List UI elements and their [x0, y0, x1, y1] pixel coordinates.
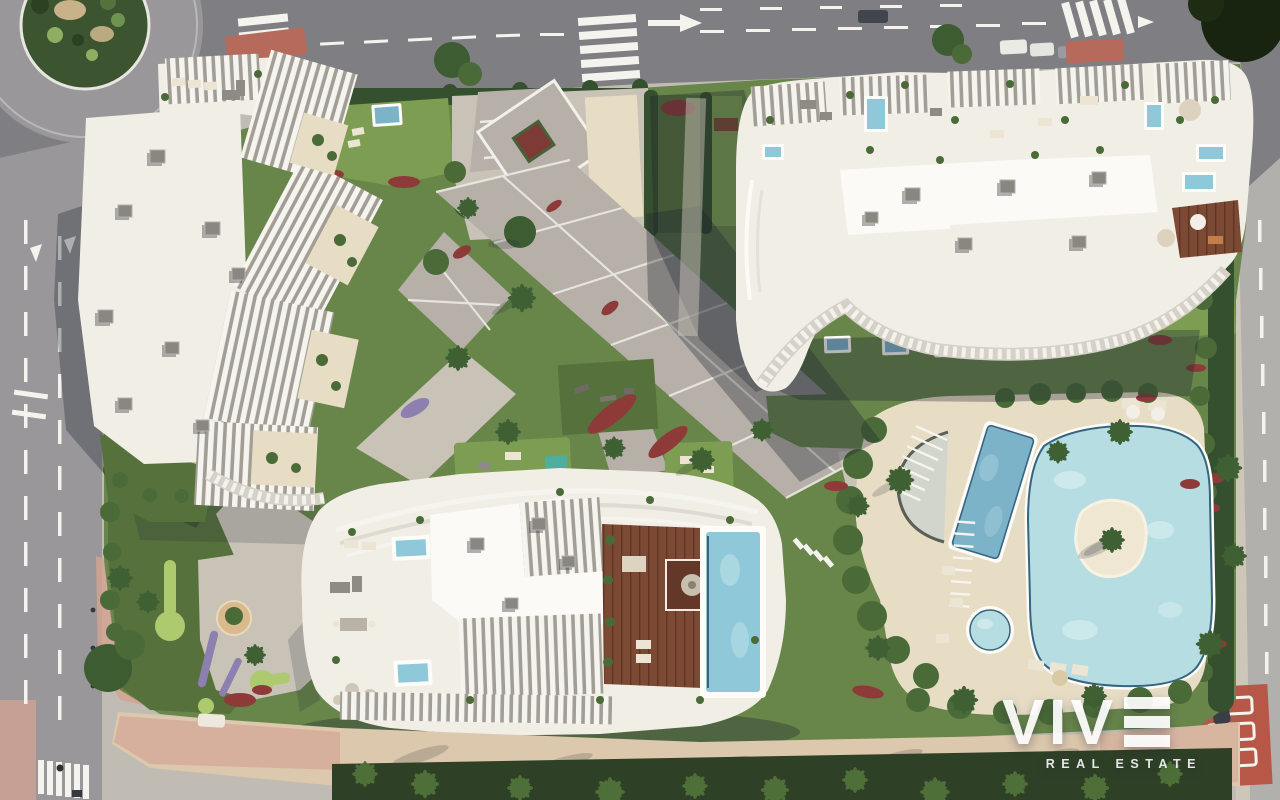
- lane-dashes-left-part: [24, 542, 28, 566]
- roof-units-north-part: [205, 222, 220, 235]
- building-south-part: [646, 496, 654, 504]
- roof-furniture-north-part: [161, 93, 169, 101]
- street-trees-part: [488, 239, 520, 249]
- building-south-part: [348, 528, 356, 536]
- watermark-tagline: REAL ESTATE: [1002, 757, 1202, 771]
- lane-dashes-left-part: [24, 634, 28, 658]
- lane-dashes-top-part: [884, 26, 908, 29]
- roof-units-north-part: [118, 205, 132, 217]
- street-trees-part: [458, 62, 482, 86]
- mini-golf-garden-part: [100, 502, 120, 522]
- roof-terraces-ne-part: [765, 147, 781, 157]
- street-trees-part: [952, 44, 972, 64]
- fin-band-south-2: [459, 614, 604, 699]
- street-trees-part: [423, 249, 449, 275]
- site-palms-part: [508, 284, 537, 313]
- lane-dashes-left-part: [58, 420, 62, 444]
- building-northeast-part: [1190, 214, 1206, 230]
- pool-loungers-part: [950, 598, 963, 607]
- building-north-part: [347, 257, 357, 267]
- terracotta-roof-right: [1065, 38, 1124, 63]
- rooftop-pool-south: [700, 526, 766, 698]
- building-north-part: [334, 234, 346, 246]
- bottom-palms-part: [352, 761, 378, 787]
- roundabout-part: [111, 13, 125, 27]
- roof-terraces-ne-part: [1199, 147, 1223, 159]
- lane-dashes-right-part: [1259, 268, 1263, 290]
- lane-dashes-left-part: [24, 266, 28, 290]
- building-south-part: [636, 640, 651, 649]
- lane-dashes-right-part: [1261, 364, 1265, 386]
- roof-terraces-ne-part: [1147, 105, 1161, 127]
- crosswalk-bottomleft-part: [47, 761, 53, 795]
- roof-terraces-ne-part: [1031, 151, 1039, 159]
- pergola-5: [1153, 60, 1231, 104]
- roundabout-part: [72, 34, 84, 46]
- roof-terraces-ne-part: [846, 91, 854, 99]
- watermark-stylized-e: [1124, 697, 1170, 754]
- pool-greens-part: [833, 525, 863, 555]
- rooftop-pool-south-part: [731, 622, 749, 658]
- roads-part: [57, 765, 64, 772]
- lane-dashes-left-part: [24, 496, 28, 520]
- mini-golf-garden-part: [103, 543, 121, 561]
- roof-terraces-ne-part: [866, 146, 874, 154]
- pool-trellis-part-part: [955, 521, 975, 522]
- site-palms-part: [136, 590, 159, 613]
- roof-furniture-north-part: [236, 80, 245, 96]
- terrace-west-south-part: [369, 621, 376, 628]
- site-palms-part: [950, 686, 979, 715]
- pool-loungers-part: [942, 566, 955, 575]
- pool-loungers-part: [1151, 407, 1165, 421]
- lane-dashes-top-part: [760, 7, 782, 10]
- roof-units-north-part: [98, 310, 113, 323]
- car-top-road: [858, 10, 888, 23]
- building-south-part: [605, 535, 615, 545]
- mini-golf-garden-part: [198, 698, 214, 714]
- van-white-2: [1030, 42, 1055, 56]
- lane-dashes-top-part: [700, 30, 724, 33]
- building-north-part: [143, 488, 157, 502]
- site-palms-part: [445, 345, 471, 371]
- roof-terraces-ne-part: [1157, 229, 1175, 247]
- building-north-part: [291, 463, 301, 473]
- wood-terrace-se: [1172, 200, 1242, 258]
- roundabout-part: [54, 0, 86, 20]
- roundabout-part: [86, 49, 98, 61]
- pool-trellis-part-part: [954, 533, 974, 534]
- garden-pool-top: [371, 103, 402, 127]
- building-south-part: [603, 657, 613, 667]
- building-south: [288, 468, 800, 756]
- roof-terraces-ne-part: [1061, 116, 1069, 124]
- lane-dashes-left-part: [58, 696, 62, 720]
- leisure-pool-part: [1158, 602, 1182, 618]
- roof-units-north-part: [118, 398, 132, 410]
- aerial-site-render: VIV REAL ESTATE: [0, 0, 1280, 800]
- building-south-part: [416, 516, 424, 524]
- roof-units-south-part: [562, 556, 575, 567]
- building-south-part: [751, 636, 759, 644]
- mini-golf-garden-part: [155, 611, 185, 641]
- lane-dashes-top-part: [820, 6, 842, 9]
- site-plot-part: [372, 88, 388, 104]
- roof-terraces-ne-part: [1096, 146, 1104, 154]
- pool-trellis-part-part: [953, 557, 973, 558]
- lane-dashes-left-part: [24, 588, 28, 612]
- roof-terraces-ne-part: [1038, 118, 1052, 126]
- site-palms-part: [1196, 630, 1225, 659]
- terrace-west-south-part: [362, 542, 376, 550]
- building-south-part: [466, 696, 474, 704]
- pergola-4: [1055, 64, 1145, 105]
- roof-terraces-ne-part: [936, 156, 944, 164]
- crosswalk-bottomleft-part: [83, 765, 89, 799]
- bottom-palms-part: [842, 767, 868, 793]
- site-plot-part: [444, 161, 466, 183]
- watermark-vive: VIV REAL ESTATE: [1002, 690, 1202, 771]
- lane-dashes-top-part: [1022, 22, 1046, 25]
- roof-terraces-ne-part: [1080, 96, 1098, 105]
- pergola-3: [947, 68, 1040, 107]
- lane-dashes-left-part: [24, 680, 28, 704]
- pool-loungers-part: [1126, 405, 1140, 419]
- roof-furniture-north-part: [172, 78, 186, 87]
- roof-terraces-ne-part: [951, 116, 959, 124]
- pool-trellis-part-part: [950, 593, 970, 594]
- roof-terraces-ne-part: [1211, 96, 1219, 104]
- mini-golf-garden-part: [100, 590, 120, 610]
- fin-band-south-3: [340, 692, 612, 725]
- leisure-pool-part: [1054, 471, 1086, 489]
- bottom-palms-part: [507, 775, 533, 800]
- building-north-part: [251, 430, 318, 487]
- site-plan-svg: [0, 0, 1280, 800]
- building-north-part: [266, 452, 278, 464]
- lane-dashes-left-part: [58, 650, 62, 674]
- building-south-part: [726, 516, 734, 524]
- building-south-part: [636, 654, 651, 663]
- mini-golf-garden-part: [164, 560, 176, 616]
- building-south-part: [603, 575, 613, 585]
- roof-furniture-north-part: [188, 80, 202, 89]
- site-palms-part: [1046, 440, 1069, 463]
- terrace-west-south-part: [398, 663, 429, 683]
- site-plot-part: [545, 455, 568, 469]
- leisure-pool: [1028, 426, 1212, 686]
- crosswalk-bottomleft-part: [65, 763, 71, 797]
- roads-part: [72, 790, 82, 797]
- pool-greens-part: [842, 566, 870, 594]
- van-white-1: [1000, 39, 1028, 54]
- flower-beds-red-part: [388, 176, 420, 188]
- site-palms-part: [865, 635, 891, 661]
- watermark-brand-row: VIV: [1002, 690, 1202, 754]
- lane-dashes-right-part: [1262, 412, 1266, 434]
- roundabout-part: [90, 26, 114, 42]
- building-north-part: [331, 381, 341, 391]
- lane-dashes-left-part: [58, 558, 62, 582]
- pool-trellis-part-part: [954, 545, 974, 546]
- terrace-west-south-part: [344, 540, 358, 548]
- lane-dashes-right-part: [1258, 220, 1262, 242]
- building-south-part: [596, 696, 604, 704]
- pink-corner: [0, 700, 36, 800]
- building-north-part: [316, 354, 328, 366]
- lane-dashes-left-part: [24, 220, 28, 244]
- terrace-west-south-part: [330, 582, 350, 593]
- lane-dashes-left-part: [24, 312, 28, 336]
- lane-dashes-top-part: [746, 29, 770, 32]
- pool-greens-part: [913, 663, 939, 689]
- terrace-west-south-part: [396, 539, 427, 557]
- site-palms-part: [495, 419, 521, 445]
- right-hedge-part: [1190, 386, 1210, 406]
- bottom-palms-part: [1002, 771, 1028, 797]
- kids-pool-part: [977, 619, 993, 629]
- pool-trellis-part-part: [951, 581, 971, 582]
- pool-greens-part: [1180, 479, 1200, 489]
- rooftop-pool-south-part: [720, 554, 740, 586]
- lane-dashes-right-part: [1264, 604, 1268, 626]
- lane-dashes-right-part: [1263, 460, 1267, 482]
- roof-terraces-ne-part: [820, 112, 832, 120]
- mini-golf-garden-part: [224, 693, 256, 707]
- roof-terraces-ne-part: [800, 100, 816, 109]
- roof-terraces-ne-part: [1176, 116, 1184, 124]
- site-palms-part: [602, 436, 625, 459]
- bottom-palms-part: [411, 770, 440, 799]
- kids-pool-part: [970, 610, 1010, 650]
- roof-furniture-north-part: [204, 82, 218, 91]
- building-south-part: [688, 581, 696, 589]
- site-palms-part: [846, 494, 869, 517]
- building-south-part: [696, 696, 704, 704]
- lane-dashes-right-part: [1263, 508, 1267, 530]
- lane-dashes-right-part: [1265, 652, 1269, 674]
- roof-units-south-part: [470, 538, 484, 550]
- leisure-pool-part: [1146, 521, 1174, 539]
- roof-units-north-part: [196, 420, 209, 431]
- roof-units-ne-part: [905, 188, 920, 201]
- site-palms-part: [750, 418, 773, 441]
- site-plot-part: [478, 462, 490, 470]
- building-north-part: [175, 489, 189, 503]
- roof-terraces-ne-part: [1006, 80, 1014, 88]
- mini-golf-garden-part: [225, 607, 243, 625]
- roof-terraces-ne-part: [1185, 175, 1213, 189]
- site-plot-part: [624, 388, 634, 394]
- roof-terraces-ne-part: [930, 108, 942, 116]
- site-palms-part: [689, 447, 715, 473]
- watermark-brand-text: VIV: [1002, 690, 1117, 754]
- roof-units-north-part: [232, 268, 245, 280]
- roof-furniture-north-part: [254, 70, 262, 78]
- terrace-west-south-part: [352, 576, 362, 592]
- lane-dashes-right-part: [1260, 316, 1264, 338]
- kids-pool: [966, 606, 1014, 654]
- lane-dashes-top-part: [940, 4, 962, 7]
- pool-greens-part: [906, 688, 930, 712]
- pool-loungers-part: [936, 634, 949, 643]
- roof-units-ne-part: [958, 238, 972, 250]
- lane-dashes-top-part: [700, 8, 722, 11]
- garden-pool-top-part: [374, 106, 399, 124]
- building-south-part: [332, 656, 340, 664]
- roads-part: [91, 608, 96, 613]
- lane-dashes-top-part: [838, 27, 862, 30]
- parked-cart: [198, 713, 226, 727]
- crosswalk-bottomleft-part: [38, 760, 44, 794]
- lane-dashes-left-part: [58, 466, 62, 490]
- terrace-west-south-part: [333, 621, 340, 628]
- building-south-part: [556, 488, 564, 496]
- building-north-part: [112, 472, 128, 488]
- site-palms-part: [107, 565, 133, 591]
- terrace-west-south-part: [340, 618, 367, 631]
- roof-units-ne-part: [1000, 180, 1015, 193]
- building-northeast-part: [1208, 236, 1223, 244]
- lane-dashes-left-part: [24, 450, 28, 474]
- roof-terraces-ne-part: [901, 81, 909, 89]
- roof-units-north-part: [150, 150, 165, 163]
- lane-dashes-left-part: [24, 358, 28, 382]
- roof-terraces-ne-part: [766, 116, 774, 124]
- pool-greens-part: [824, 481, 848, 491]
- lane-dashes-right-part: [1264, 556, 1268, 578]
- leisure-pool-part: [1062, 620, 1098, 640]
- site-palms-part: [1221, 543, 1247, 569]
- roof-units-south-part: [532, 518, 546, 530]
- building-south-part: [622, 556, 646, 572]
- site-palms-part: [457, 197, 479, 219]
- building-south-part: [605, 617, 615, 627]
- roof-terraces-ne-part: [1121, 81, 1129, 89]
- mini-golf-garden-part: [252, 685, 272, 695]
- roof-units-ne-part: [1072, 236, 1086, 248]
- building-north-part: [312, 134, 324, 146]
- roof-units-south-part: [505, 598, 518, 609]
- pool-greens-part: [857, 601, 887, 631]
- site-palms-part: [1214, 454, 1243, 483]
- pool-loungers-part: [1052, 670, 1068, 686]
- lane-dashes-left-part: [58, 374, 62, 398]
- lane-dashes-left-part: [58, 604, 62, 628]
- site-palms-part: [1107, 419, 1133, 445]
- roof-units-ne-part: [865, 212, 878, 223]
- building-north-part: [327, 151, 337, 161]
- site-palms-part: [244, 644, 266, 666]
- lane-dashes-left-part: [58, 512, 62, 536]
- lane-dashes-top-part: [880, 5, 902, 8]
- lane-dashes-top-part: [540, 33, 564, 36]
- site-palms-part: [1099, 527, 1125, 553]
- roof-units-north-part: [165, 342, 179, 354]
- bottom-palms-part: [682, 773, 708, 799]
- lane-dashes-top-part: [792, 28, 816, 31]
- roundabout-part: [47, 27, 63, 43]
- roof-terraces-ne-part: [867, 99, 885, 129]
- mini-golf-garden-part: [115, 630, 145, 660]
- site-plot-part: [505, 452, 521, 460]
- site-palms-part: [886, 466, 915, 495]
- roof-terraces-ne-part: [990, 130, 1004, 138]
- roof-units-ne-part: [1092, 172, 1106, 184]
- lane-dashes-top-part: [976, 24, 1000, 27]
